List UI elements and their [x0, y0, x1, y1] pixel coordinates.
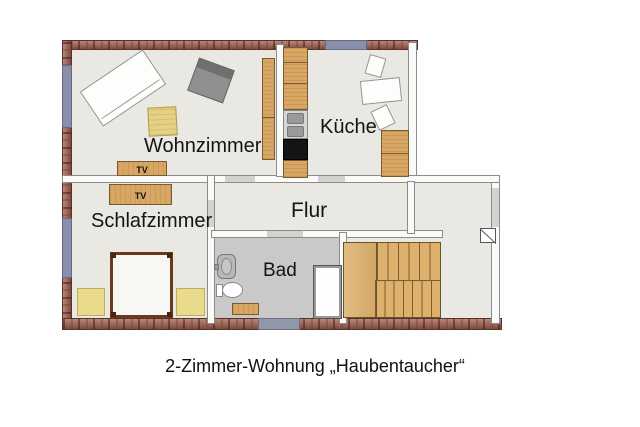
wall-bedroom-hall: [207, 175, 215, 324]
tv-board-livingroom: TV: [117, 161, 167, 176]
stove: [283, 139, 308, 160]
stair-landing: [344, 243, 377, 317]
kitchen-counter-cabinets: [283, 47, 308, 110]
label-kueche: Küche: [320, 116, 377, 139]
door-opening-livingroom: [225, 176, 255, 182]
tv-label-livingroom: TV: [136, 165, 148, 175]
kitchen-sideboard: [381, 130, 409, 177]
dining-table: [360, 77, 402, 105]
window-bottom-bath: [258, 318, 300, 330]
nightstand-left: [77, 288, 105, 316]
staircase: [343, 242, 441, 318]
tv-label-bedroom: TV: [135, 191, 147, 201]
shower: [314, 266, 341, 318]
plan-caption: 2-Zimmer-Wohnung „Haubentaucher“: [0, 356, 630, 377]
bed: [110, 252, 173, 318]
door-opening-bath: [267, 231, 303, 237]
label-flur: Flur: [291, 199, 327, 223]
nightstand-right: [176, 288, 205, 316]
window-left-bedroom: [62, 218, 72, 278]
toilet-bowl: [222, 282, 243, 298]
wall-right-entry-opening: [492, 188, 499, 227]
sink-bowl-2: [287, 126, 304, 137]
label-wohnzimmer: Wohnzimmer: [144, 135, 261, 158]
wall-hall-stub: [407, 181, 415, 234]
wall-right-kitchen: [408, 42, 417, 183]
washbasin-tap: [214, 264, 219, 270]
tv-board-bedroom: TV: [109, 184, 172, 205]
washbasin-bowl: [221, 258, 232, 275]
kitchen-cabinet-lower: [283, 160, 308, 178]
kitchen-sink-unit: [283, 110, 308, 139]
floor-plan: TV TV Wohnzimmer Küche Schlafzimmer: [0, 0, 640, 427]
washbasin: [217, 254, 236, 279]
door-opening-kitchen: [318, 176, 345, 182]
entrance-door-icon: [480, 228, 496, 243]
stair-flight-upper: [377, 243, 440, 280]
tall-cabinet-livingroom: [262, 58, 275, 160]
bath-bench: [232, 303, 259, 315]
window-left-livingroom: [62, 65, 72, 128]
window-top-kitchen: [325, 40, 367, 50]
door-swing-line: [480, 229, 496, 244]
label-bad: Bad: [263, 260, 297, 282]
stair-flight-lower: [375, 280, 440, 317]
label-schlafzimmer: Schlafzimmer: [91, 210, 212, 233]
coffee-table: [147, 106, 177, 136]
sink-bowl-1: [287, 113, 304, 124]
